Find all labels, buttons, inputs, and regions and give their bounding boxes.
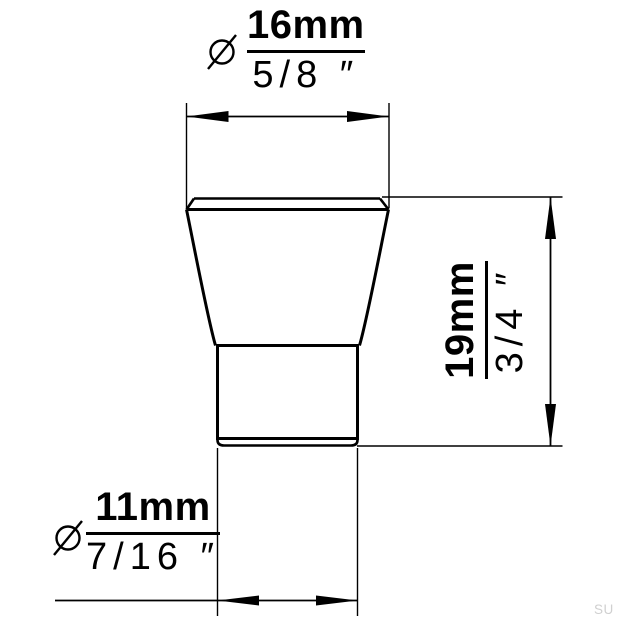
dimension-line-height bbox=[545, 197, 556, 446]
bottom-diameter-metric: 11mm bbox=[95, 488, 210, 526]
fraction-bar bbox=[86, 532, 220, 535]
diameter-icon bbox=[46, 516, 90, 560]
diameter-icon bbox=[200, 30, 244, 74]
arrow-right-icon bbox=[316, 596, 358, 606]
fraction-bar bbox=[247, 50, 365, 53]
dimension-line-top-diameter bbox=[187, 111, 390, 122]
top-diameter-metric: 16mm bbox=[247, 6, 365, 44]
watermark: SU bbox=[594, 602, 614, 617]
technical-drawing-canvas: 16mm 5/8 ″ 19mm 3/4 ″ 11mm 7/16 ″ SU bbox=[0, 0, 620, 620]
height-label: 19mm 3/4 ″ bbox=[439, 262, 531, 378]
arrow-left-icon bbox=[187, 111, 229, 122]
top-diameter-imperial: 5/8 ″ bbox=[252, 57, 359, 93]
arrow-up-icon bbox=[545, 197, 556, 239]
arrow-left-icon bbox=[218, 596, 260, 606]
arrow-right-icon bbox=[347, 111, 389, 122]
height-metric: 19mm bbox=[441, 261, 479, 379]
height-imperial: 3/4 ″ bbox=[492, 267, 528, 374]
fraction-bar bbox=[485, 261, 488, 379]
bottom-diameter-imperial: 7/16 ″ bbox=[86, 539, 220, 575]
top-diameter-label: 16mm 5/8 ″ bbox=[247, 6, 365, 93]
bottom-diameter-label: 11mm 7/16 ″ bbox=[86, 488, 220, 575]
arrow-down-icon bbox=[545, 404, 556, 446]
knob-outline bbox=[187, 199, 389, 446]
dimension-line-bottom-diameter bbox=[55, 596, 358, 606]
